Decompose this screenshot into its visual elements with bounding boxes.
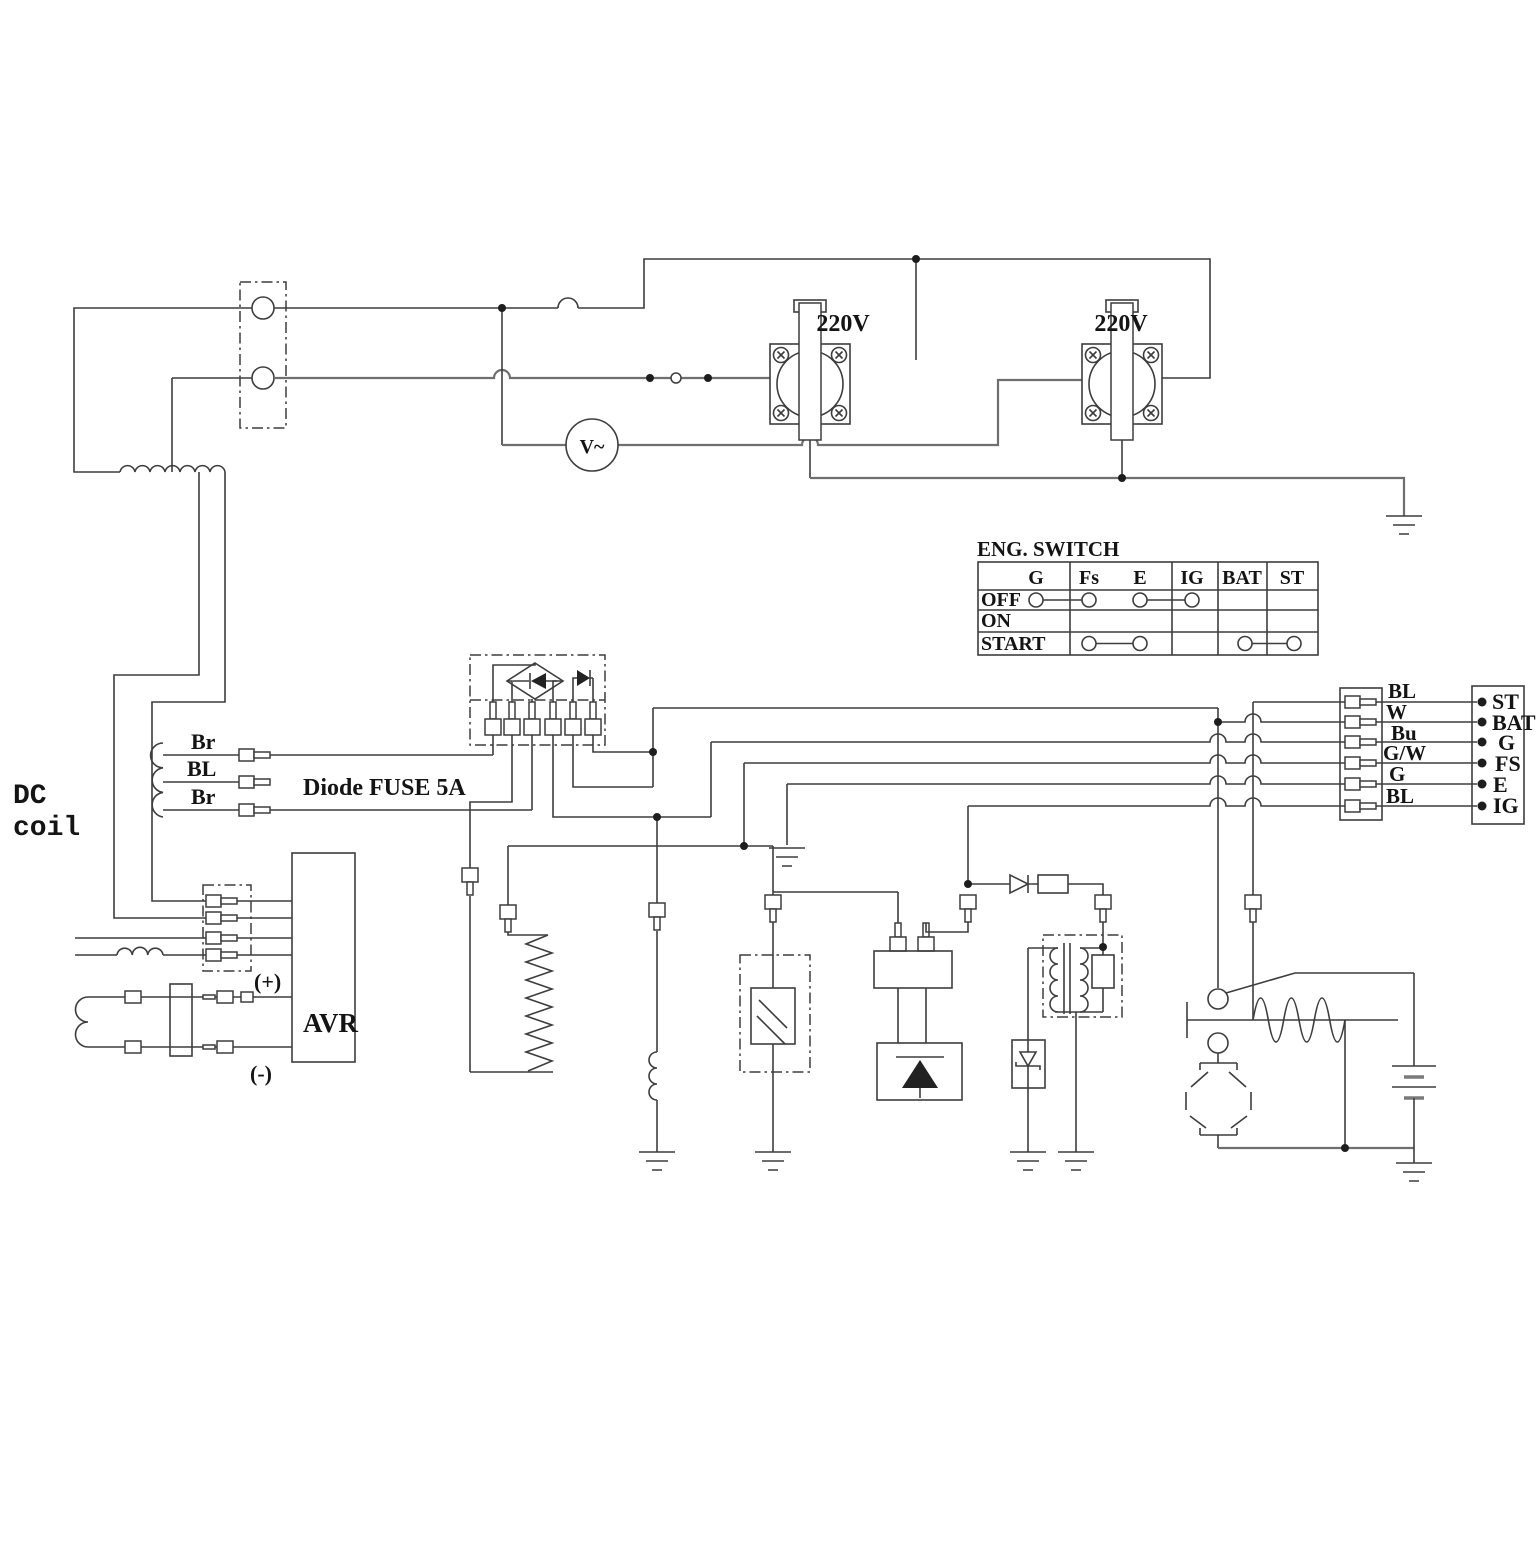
voltmeter: V~ <box>566 419 618 471</box>
load-resistor <box>462 846 773 1072</box>
wire-label-br-top: Br <box>191 729 216 754</box>
dc-coil-wires: Br BL Br Diode FUSE 5A <box>151 708 711 868</box>
ground-symbol <box>1058 1152 1094 1170</box>
avr-minus-label: (-) <box>250 1061 272 1086</box>
oil-alert-unit <box>874 922 968 1100</box>
wiring-diagram-page: V~ 220V 220V ENG. SWITCH G Fs E IG BAT S… <box>0 0 1540 1541</box>
harness-wire-label: BL <box>1386 784 1414 808</box>
outlet1-label: 220V <box>816 311 870 337</box>
junction-dots <box>498 255 1349 1152</box>
switch-harness: BL W Bu G/W G BL ST BAT G FS E IG <box>653 679 1536 1020</box>
col-g: G <box>1028 567 1044 589</box>
exciter-coil <box>76 997 89 1047</box>
dc-label: DC <box>13 781 47 812</box>
oil-sensor-branch <box>740 846 898 1170</box>
voltmeter-label: V~ <box>580 436 605 458</box>
wire-label-br-bottom: Br <box>191 784 216 809</box>
outlet2-label: 220V <box>1094 311 1148 337</box>
ground-symbol <box>755 1152 791 1170</box>
engine-switch-table: ENG. SWITCH G Fs E IG BAT ST OFF ON STAR… <box>977 537 1318 655</box>
scr-icon <box>902 1060 938 1088</box>
col-fs: Fs <box>1079 567 1099 589</box>
engine-switch-title: ENG. SWITCH <box>977 537 1119 561</box>
starter-circuit <box>1186 973 1436 1181</box>
row-start: START <box>981 633 1046 655</box>
solenoid-contact-upper <box>1208 989 1228 1009</box>
outlet-220v-1: 220V <box>770 300 870 440</box>
fuse-bump <box>558 298 578 308</box>
ground-symbol <box>1396 1163 1432 1181</box>
zener-diode-icon <box>1020 1052 1036 1066</box>
ground-symbol <box>639 1152 675 1170</box>
wire-label-bl: BL <box>187 756 216 781</box>
transformer-secondary <box>1080 948 1088 1012</box>
avr-module: AVR (+) (-) <box>76 853 359 1086</box>
generator-wiring-diagram: V~ 220V 220V ENG. SWITCH G Fs E IG BAT S… <box>0 0 1540 1541</box>
pickup-coil <box>649 1052 657 1100</box>
resistor <box>1092 955 1114 988</box>
ac-output-wiring <box>274 259 1422 534</box>
battery <box>1392 973 1436 1163</box>
avr-plus-label: (+) <box>254 969 281 994</box>
ground-symbol <box>769 848 805 866</box>
outlet-220v-2: 220V <box>1082 300 1162 440</box>
diode-fuse-label: Diode FUSE 5A <box>303 775 466 801</box>
avr-label: AVR <box>303 1008 359 1038</box>
terminal-label: IG <box>1493 793 1519 818</box>
solenoid-contact-lower <box>1208 1033 1228 1053</box>
transformer-core <box>1064 943 1070 1014</box>
coil-label: coil <box>13 813 80 844</box>
col-ig: IG <box>1180 567 1204 589</box>
ground-symbol <box>1386 516 1422 534</box>
dc-coil-caption: DC coil <box>13 781 80 844</box>
col-st: ST <box>1280 567 1305 589</box>
brush-holder <box>170 984 192 1056</box>
ignition-coil-branch <box>639 817 675 1170</box>
diode-rectifier-module <box>470 655 605 745</box>
resistor <box>1038 875 1068 893</box>
col-e: E <box>1133 567 1146 589</box>
solenoid-arm <box>1226 973 1414 993</box>
col-bat: BAT <box>1222 567 1262 589</box>
ground-symbol <box>1010 1152 1046 1170</box>
switch-terminal-block: ST BAT G FS E IG <box>1472 686 1536 824</box>
row-off: OFF <box>981 589 1021 611</box>
transformer-primary <box>1050 948 1058 1012</box>
harness-wire-label: G <box>1389 762 1405 786</box>
starter-motor <box>1186 1053 1251 1148</box>
row-on: ON <box>981 610 1012 632</box>
diode-icon <box>577 670 590 686</box>
breaker-block <box>240 282 286 428</box>
charging-branch <box>960 806 1122 1170</box>
stator-winding <box>74 308 292 955</box>
start-row-contacts <box>1082 637 1301 651</box>
off-row-contacts <box>1029 593 1199 607</box>
diode-icon <box>1010 875 1028 893</box>
